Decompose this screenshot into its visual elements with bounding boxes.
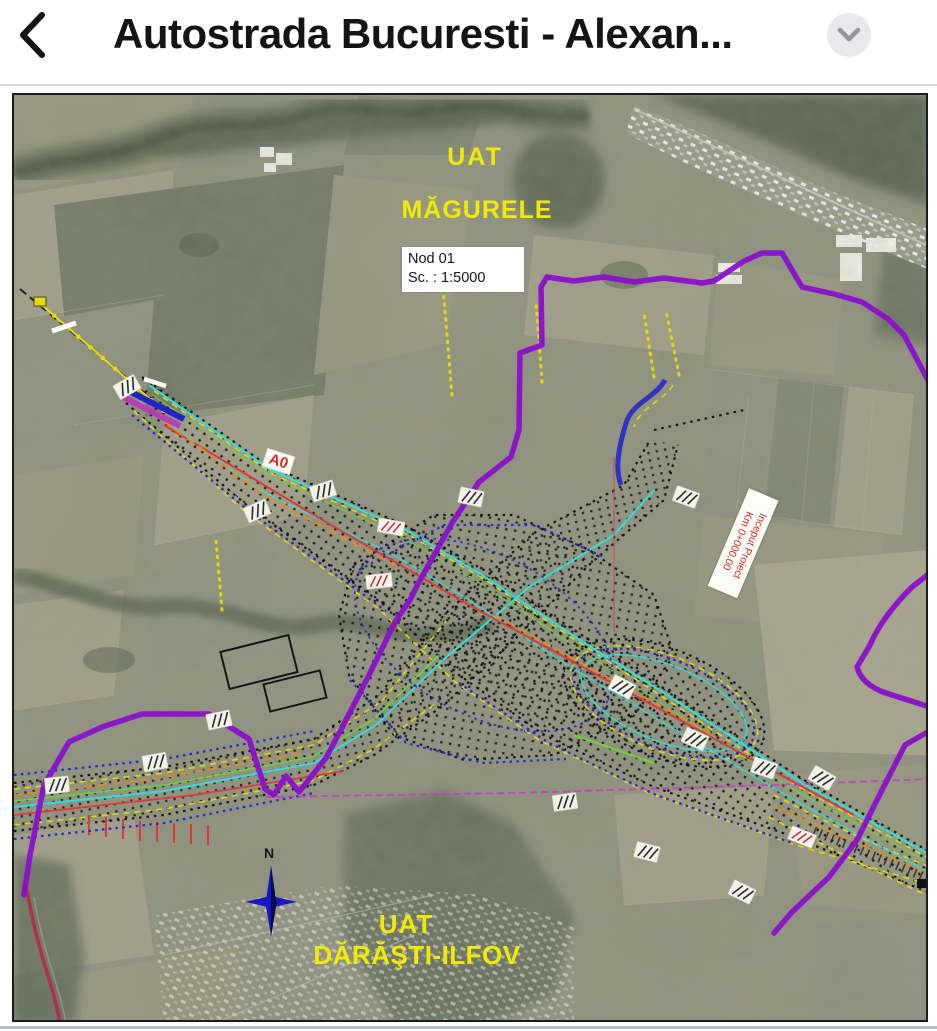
compass-north-label: N: [254, 845, 284, 861]
node-scale: Sc. : 1:5000: [408, 269, 518, 288]
uat-magurele-label-line2: MĂGURELE: [377, 196, 577, 225]
uat-darasti-label-line1: UAT: [346, 909, 466, 940]
chevron-down-icon: [836, 26, 862, 44]
node-name: Nod 01: [408, 250, 518, 269]
back-button[interactable]: [8, 6, 56, 64]
uat-magurele-label-line1: UAT: [415, 143, 535, 172]
chevron-left-icon: [15, 10, 49, 60]
compass-rose-icon: [241, 863, 301, 937]
node-info-box: Nod 01 Sc. : 1:5000: [401, 246, 525, 293]
bottom-divider: [0, 1026, 937, 1029]
header-divider: [0, 84, 937, 86]
title-dropdown-button[interactable]: [827, 13, 871, 57]
document-viewer-screen: Autostrada Bucuresti - Alexan...: [0, 0, 937, 1031]
map-document[interactable]: UAT MĂGURELE Nod 01 Sc. : 1:5000 A0 Ince…: [12, 93, 928, 1022]
page-title: Autostrada Bucuresti - Alexan...: [113, 8, 823, 66]
uat-darasti-label-line2: DĂRĂŞTI-ILFOV: [287, 940, 547, 971]
satellite-plan-drawing: [14, 95, 928, 1022]
header-bar: Autostrada Bucuresti - Alexan...: [0, 0, 937, 85]
